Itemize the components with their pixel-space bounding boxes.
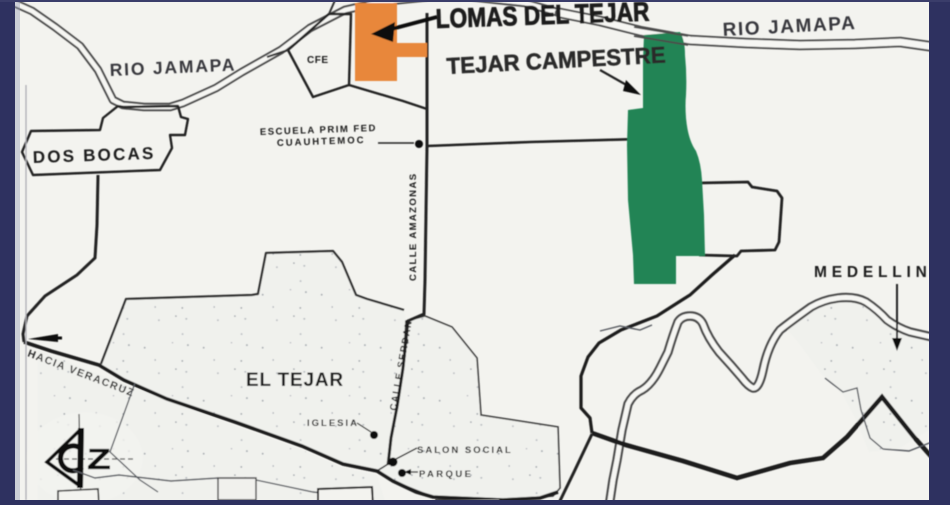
svg-text:PARQUE: PARQUE [419, 469, 473, 480]
svg-text:SALON SOCIAL: SALON SOCIAL [417, 445, 513, 456]
svg-text:EL TEJAR: EL TEJAR [246, 370, 344, 391]
svg-text:Z: Z [87, 444, 111, 476]
svg-text:CALLE AMAZONAS: CALLE AMAZONAS [408, 173, 419, 281]
svg-text:MEDELLIN: MEDELLIN [814, 264, 932, 281]
svg-text:CFE: CFE [307, 55, 329, 66]
svg-text:IGLESIA: IGLESIA [307, 418, 359, 429]
